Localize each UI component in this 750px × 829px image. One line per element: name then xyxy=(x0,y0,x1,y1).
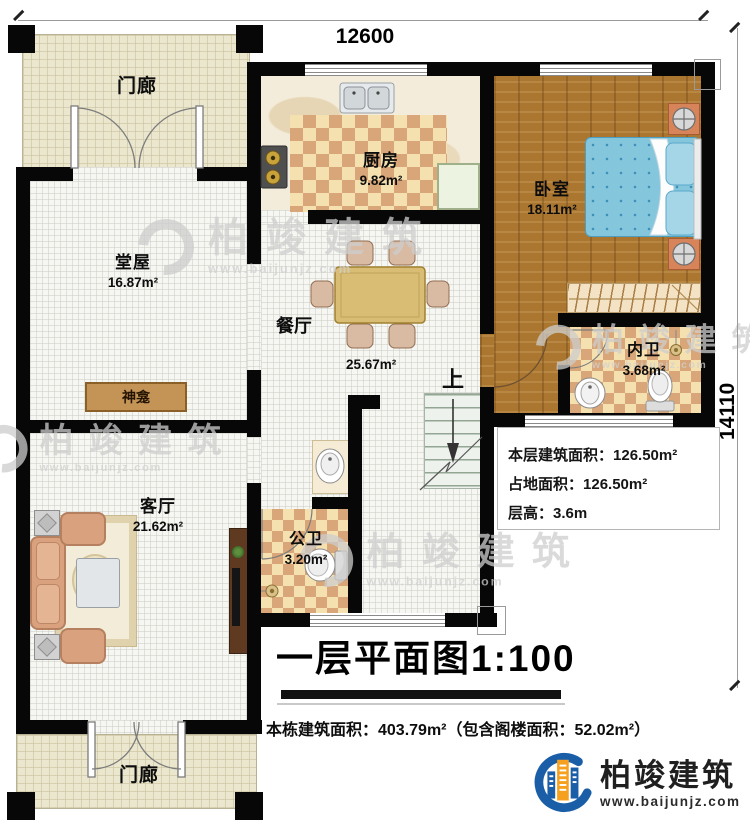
wall xyxy=(247,224,261,264)
doorway-patch xyxy=(88,720,183,734)
floorplan-canvas: 12600 14110 神龛 xyxy=(0,0,750,829)
doorway-patch xyxy=(72,167,198,181)
pillar xyxy=(236,25,263,53)
brand-name: 柏竣建筑 xyxy=(600,760,741,791)
brand-logo-icon xyxy=(530,752,592,816)
room-label-hall: 堂屋 16.87m² xyxy=(83,252,183,292)
dimension-tick xyxy=(729,22,740,33)
wall xyxy=(701,62,715,427)
shrine: 神龛 xyxy=(85,382,187,412)
doorway-patch xyxy=(480,334,494,387)
bedroom-window xyxy=(540,64,652,76)
dimension-tick xyxy=(729,680,740,691)
staircase xyxy=(424,393,485,489)
wall xyxy=(558,365,570,413)
plan-title: 一层平面图1:100 xyxy=(276,628,576,682)
wardrobe xyxy=(567,283,701,313)
doorway-patch xyxy=(247,264,261,370)
brand-logo: 柏竣建筑 www.baijunjz.com xyxy=(530,752,741,816)
wall xyxy=(16,167,73,181)
side-table xyxy=(34,634,60,660)
nightstand-bottom xyxy=(668,238,700,270)
plant xyxy=(232,546,244,558)
armchair-top xyxy=(60,512,106,546)
title-underline xyxy=(281,690,561,699)
room-label-dining-name: 餐厅 xyxy=(276,312,312,338)
porch-top-floor xyxy=(22,34,250,169)
room-label-porch-bottom: 门廊 xyxy=(97,764,181,789)
pillar xyxy=(235,792,263,820)
wall xyxy=(183,720,262,734)
wall xyxy=(247,634,261,734)
master-bath-window xyxy=(525,415,673,427)
wall xyxy=(312,497,348,509)
fridge xyxy=(437,163,480,210)
stairs-up-label: 上 xyxy=(442,362,464,394)
room-label-living: 客厅 21.62m² xyxy=(108,496,208,536)
room-label-porch-top: 门廊 xyxy=(95,75,179,100)
room-label-dining-area: 25.67m² xyxy=(346,357,396,372)
wall xyxy=(30,420,247,433)
pillar xyxy=(8,25,35,53)
wall xyxy=(16,167,30,734)
sofa-cushion xyxy=(36,584,60,624)
wall xyxy=(16,720,88,734)
stair-hall-window xyxy=(310,615,445,627)
nightstand-top xyxy=(668,103,700,135)
stat-floor-height: 层高：3.6m xyxy=(508,499,719,528)
dimension-line-top xyxy=(18,20,708,21)
kitchen-window xyxy=(305,64,427,76)
armchair-bottom xyxy=(60,628,106,664)
stat-floor-area: 本层建筑面积：126.50m² xyxy=(508,441,719,470)
wall xyxy=(247,613,310,627)
side-table xyxy=(34,510,60,536)
room-label-bedroom: 卧室 18.11m² xyxy=(502,179,602,219)
doorway-patch xyxy=(261,210,308,224)
tv-screen xyxy=(232,568,240,626)
room-label-kitchen: 厨房 9.82m² xyxy=(331,150,431,190)
title-underline-thin xyxy=(277,703,565,705)
wall xyxy=(480,387,494,620)
column-marker xyxy=(694,59,721,90)
wall xyxy=(348,398,362,613)
wall xyxy=(247,62,261,224)
doorway-patch xyxy=(247,437,261,483)
stat-ground-area: 占地面积：126.50m² xyxy=(508,470,719,499)
wall xyxy=(308,210,483,224)
room-label-public-bath: 公卫 3.20m² xyxy=(258,530,354,568)
stats-panel: 本层建筑面积：126.50m² 占地面积：126.50m² 层高：3.6m xyxy=(497,427,720,530)
washbasin-mat xyxy=(312,440,350,494)
room-label-master-bath: 内卫 3.68m² xyxy=(596,341,692,379)
dimension-top-value: 12600 xyxy=(325,25,405,49)
wall xyxy=(558,313,703,327)
total-area-note: 本栋建筑面积：403.79m²（包含阁楼面积：52.02m²） xyxy=(266,716,650,740)
wall xyxy=(247,370,261,437)
sofa-cushion xyxy=(36,542,60,580)
wall xyxy=(480,62,494,334)
pillar xyxy=(7,792,35,820)
shrine-label: 神龛 xyxy=(122,387,150,407)
brand-website: www.baijunjz.com xyxy=(600,794,741,809)
coffee-table xyxy=(76,558,120,608)
dimension-line-right xyxy=(737,28,738,688)
